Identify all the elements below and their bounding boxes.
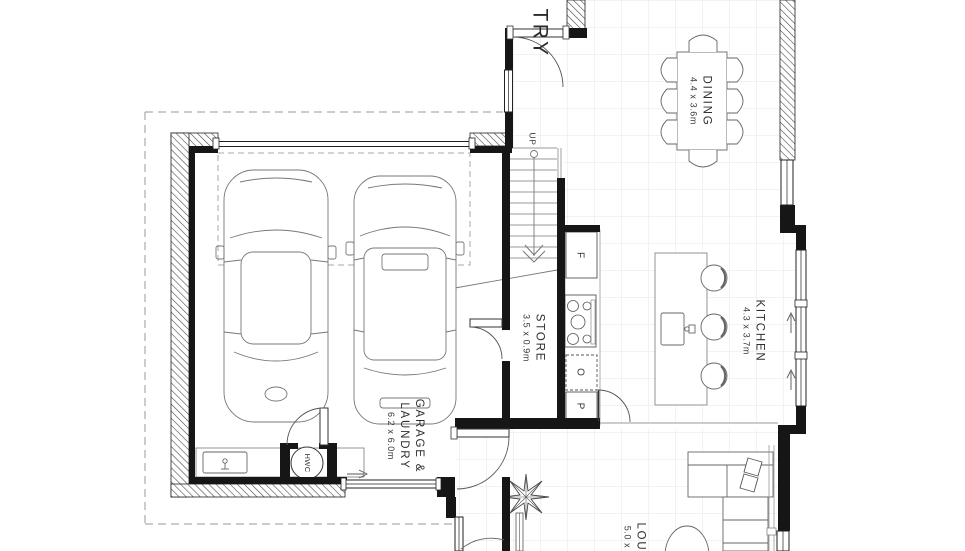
floor-plan: TRY DINING 4.4 x 3.6m KITCHEN 4.3 x 3.7m…: [0, 0, 965, 551]
dining-room-label: DINING 4.4 x 3.6m: [687, 75, 714, 126]
fridge-label: F: [574, 252, 587, 258]
kitchen-island: [655, 253, 707, 405]
sink: [661, 313, 684, 345]
pantry-label: P: [574, 403, 587, 410]
car-2: [346, 176, 464, 424]
kitchen-bench: [565, 230, 600, 425]
cooktop: [565, 295, 596, 347]
store-room-label: STORE 3.5 x 0.9m: [520, 314, 547, 362]
stairs-up-label: UP: [526, 132, 537, 145]
floor-plan-drawing: [0, 0, 965, 551]
kitchen-room-label: KITCHEN 4.3 x 3.7m: [740, 299, 767, 362]
entry-label: TRY: [526, 8, 553, 57]
garage-door: [213, 138, 475, 149]
garage-room-label: GARAGE & LAUNDRY 6.2 x 6.0m: [384, 399, 426, 473]
store-door: [470, 319, 502, 359]
lounge-room-label: LOU 5.0 x: [621, 522, 648, 551]
car-1: [216, 170, 336, 422]
bar-stools: [701, 265, 727, 389]
hwc-label: HWC: [302, 453, 312, 472]
oven-label: O: [574, 368, 587, 376]
